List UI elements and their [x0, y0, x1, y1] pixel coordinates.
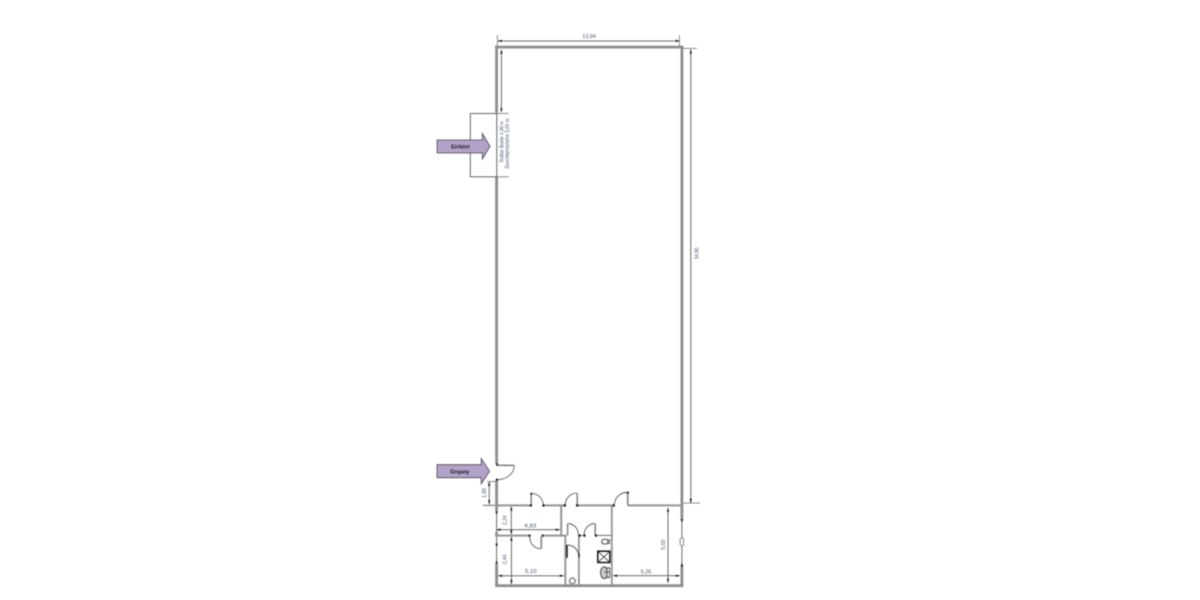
svg-text:2,24: 2,24	[503, 515, 509, 525]
svg-text:34,90: 34,90	[694, 248, 700, 260]
svg-text:5,00: 5,00	[661, 540, 667, 550]
svg-text:Eingang: Eingang	[451, 469, 470, 475]
svg-text:Durchfahrtshöhe 3,00 m: Durchfahrtshöhe 3,00 m	[505, 118, 511, 168]
svg-text:5,10: 5,10	[525, 569, 537, 575]
svg-text:4,83: 4,83	[524, 524, 536, 530]
svg-text:5,26: 5,26	[641, 569, 652, 575]
svg-text:13,94: 13,94	[582, 34, 596, 40]
svg-text:2,44: 2,44	[502, 555, 508, 565]
svg-text:1,85: 1,85	[482, 488, 488, 498]
svg-text:Einfahrt: Einfahrt	[451, 145, 470, 151]
